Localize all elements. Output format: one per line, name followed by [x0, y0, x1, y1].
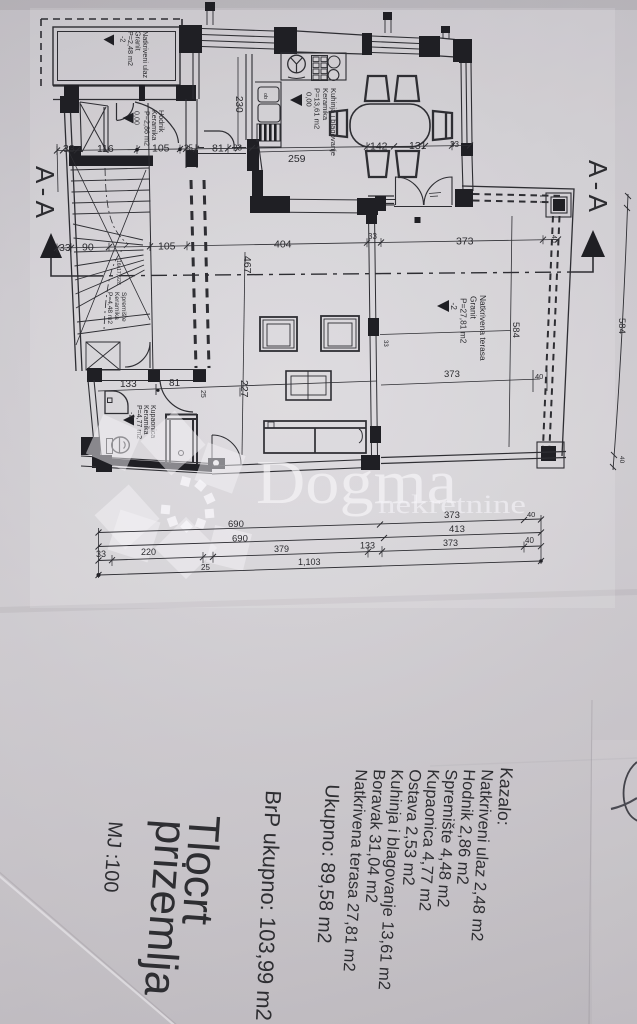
svg-text:Natkrivena terasa: Natkrivena terasa	[478, 295, 488, 361]
svg-text:-2: -2	[119, 36, 128, 42]
svg-text:584: 584	[616, 318, 627, 334]
svg-text:Granit: Granit	[469, 296, 479, 319]
svg-text:33: 33	[63, 143, 75, 155]
svg-text:81: 81	[169, 378, 181, 389]
svg-text:25: 25	[184, 144, 193, 153]
svg-text:105: 105	[152, 143, 170, 155]
svg-text:40: 40	[535, 372, 543, 381]
svg-text:Spremište: Spremište	[120, 292, 127, 322]
svg-text:33: 33	[59, 242, 71, 254]
svg-text:33: 33	[382, 340, 388, 347]
svg-text:404: 404	[274, 239, 292, 251]
svg-text:33: 33	[96, 549, 106, 559]
svg-text:ob: ob	[262, 93, 268, 99]
svg-text:133: 133	[120, 379, 137, 390]
svg-text:40: 40	[550, 235, 557, 243]
svg-text:379: 379	[274, 544, 289, 554]
svg-text:Ukupno: 89,58 m2: Ukupno: 89,58 m2	[313, 784, 343, 944]
svg-text:373: 373	[444, 369, 460, 380]
svg-text:40: 40	[525, 536, 534, 545]
svg-text:131: 131	[409, 140, 427, 152]
svg-text:690: 690	[228, 519, 244, 530]
svg-text:A-A: A-A	[583, 160, 613, 213]
svg-text:116: 116	[97, 143, 114, 155]
svg-text:A-A: A-A	[30, 166, 60, 219]
svg-text:81: 81	[212, 143, 224, 155]
svg-text:142: 142	[370, 141, 388, 153]
svg-text:33: 33	[450, 140, 459, 149]
svg-text:0,00: 0,00	[305, 92, 314, 107]
svg-text:0,00: 0,00	[133, 111, 142, 125]
svg-text:25: 25	[199, 390, 206, 398]
svg-text:220: 220	[141, 547, 156, 557]
svg-text:Keramika: Keramika	[142, 405, 149, 435]
svg-text:BrP ukupno: 103,99 m2: BrP ukupno: 103,99 m2	[251, 790, 286, 1022]
svg-text:P=27,81 m2: P=27,81 m2	[459, 298, 469, 344]
svg-text:P=4,48 m2: P=4,48 m2	[106, 292, 113, 324]
svg-text:373: 373	[444, 510, 460, 521]
svg-text:690: 690	[232, 534, 248, 545]
svg-text:227: 227	[238, 380, 250, 398]
svg-text:Keramika: Keramika	[113, 292, 120, 320]
svg-text:373: 373	[456, 236, 474, 248]
svg-text:Kazalo:: Kazalo:	[493, 767, 517, 826]
svg-text:33: 33	[368, 232, 377, 241]
svg-text:25: 25	[201, 563, 210, 572]
svg-text:90: 90	[82, 242, 94, 254]
svg-text:23: 23	[233, 144, 242, 153]
svg-text:373: 373	[443, 538, 458, 548]
svg-text:584: 584	[510, 322, 521, 338]
svg-text:prizemlja: prizemlja	[135, 818, 196, 998]
svg-text:133: 133	[360, 541, 375, 551]
svg-text:230: 230	[233, 96, 244, 113]
svg-text:P=2,86 m2: P=2,86 m2	[143, 111, 152, 146]
svg-text:467: 467	[241, 256, 253, 274]
svg-text:413: 413	[449, 524, 465, 535]
svg-text:MJ :100: MJ :100	[99, 821, 126, 894]
svg-text:40: 40	[618, 456, 625, 464]
svg-text:105: 105	[158, 241, 176, 253]
svg-text:16x17,6/28: 16x17,6/28	[115, 260, 121, 285]
svg-text:-2: -2	[449, 303, 459, 311]
svg-text:1,103: 1,103	[298, 557, 321, 567]
svg-text:259: 259	[288, 153, 306, 165]
svg-text:40: 40	[527, 510, 535, 519]
svg-text:-2: -2	[128, 412, 135, 418]
